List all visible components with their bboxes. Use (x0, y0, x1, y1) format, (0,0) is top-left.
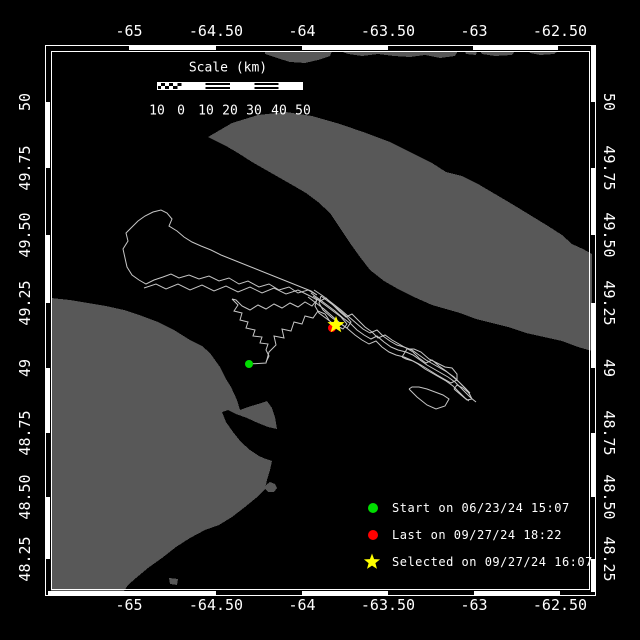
frame-band (591, 168, 595, 235)
lat-tick-label-left: 49.25 (16, 280, 34, 325)
frame-band (302, 46, 388, 50)
scale-bar-segment (181, 82, 205, 90)
frame-band (46, 102, 50, 168)
frame-band (591, 45, 595, 102)
lon-tick-label-top: -63.50 (361, 22, 415, 40)
map-canvas[interactable] (0, 0, 640, 640)
lat-tick-label-left: 48.50 (16, 474, 34, 519)
lon-tick-label-bottom: -64.50 (189, 596, 243, 614)
scale-bar-label: 30 (246, 104, 262, 119)
lon-tick-label-bottom: -64 (288, 596, 315, 614)
legend-marker-circle-0 (368, 503, 378, 513)
lat-tick-label-right: 49 (600, 359, 618, 377)
scale-bar-label: 50 (295, 104, 311, 119)
frame-band (591, 303, 595, 368)
lat-tick-label-left: 49 (16, 359, 34, 377)
frame-band (46, 497, 50, 559)
scale-bar-segment (230, 82, 254, 90)
lon-tick-label-top: -64 (288, 22, 315, 40)
bonaventure-island (265, 482, 277, 492)
legend-marker-star (364, 554, 380, 569)
lon-tick-label-top: -62.50 (533, 22, 587, 40)
lat-tick-label-right: 49.75 (600, 145, 618, 190)
lon-tick-label-bottom: -63.50 (361, 596, 415, 614)
frame-band (46, 368, 50, 433)
lat-tick-label-left: 49.50 (16, 212, 34, 257)
lon-tick-label-bottom: -62.50 (533, 596, 587, 614)
north-shore-strip-2 (340, 51, 458, 58)
lat-tick-label-left: 48.75 (16, 410, 34, 455)
frame-band (129, 46, 216, 50)
lat-tick-label-right: 48.25 (600, 536, 618, 581)
lat-tick-label-right: 48.50 (600, 474, 618, 519)
anticosti-island (208, 112, 592, 351)
drifter-track (232, 299, 269, 362)
lat-tick-label-right: 48.75 (600, 410, 618, 455)
drifter-track (313, 296, 470, 393)
lat-tick-label-right: 49.25 (600, 280, 618, 325)
lon-tick-label-bottom: -63 (460, 596, 487, 614)
lat-tick-label-right: 49.50 (600, 212, 618, 257)
scale-bar-title: Scale (km) (189, 61, 267, 76)
legend-label-0: Start on 06/23/24 15:07 (392, 501, 570, 515)
scale-bar-label: 10 (149, 104, 165, 119)
lon-tick-label-bottom: -65 (115, 596, 142, 614)
gaspe-peninsula (51, 298, 277, 591)
scale-bar-label: 40 (271, 104, 287, 119)
scale-bar-label: 0 (177, 104, 185, 119)
lat-tick-label-right: 50 (600, 93, 618, 111)
scale-bar-stripe (206, 85, 230, 87)
shore-islet (169, 578, 178, 585)
legend-marker-circle-1 (368, 530, 378, 540)
drifter-track (409, 387, 449, 409)
north-shore-strip-1 (265, 51, 332, 63)
drifter-track (123, 210, 317, 295)
frame-band (473, 46, 558, 50)
lon-tick-label-top: -63 (460, 22, 487, 40)
drifter-track (471, 398, 476, 402)
scale-bar-label: 10 (198, 104, 214, 119)
scale-bar-segment (279, 82, 303, 90)
lon-tick-label-top: -64.50 (189, 22, 243, 40)
start-position-marker[interactable] (245, 360, 253, 368)
scale-bar-stripe (254, 85, 278, 87)
frame-band (591, 433, 595, 497)
lon-tick-label-top: -65 (115, 22, 142, 40)
frame-band (474, 591, 560, 595)
frame-band (46, 235, 50, 303)
lat-tick-label-left: 50 (16, 93, 34, 111)
drifter-track (308, 297, 469, 401)
legend-label-2: Selected on 09/27/24 16:07 (392, 555, 593, 569)
lat-tick-label-left: 49.75 (16, 145, 34, 190)
legend-label-1: Last on 09/27/24 18:22 (392, 528, 562, 542)
frame-band (302, 591, 388, 595)
lat-tick-label-left: 48.25 (16, 536, 34, 581)
frame-band (48, 591, 216, 595)
drifter-map-window: -65-65-64.50-64.50-64-64-63.50-63.50-63-… (0, 0, 640, 640)
scale-bar-label: 20 (222, 104, 238, 119)
